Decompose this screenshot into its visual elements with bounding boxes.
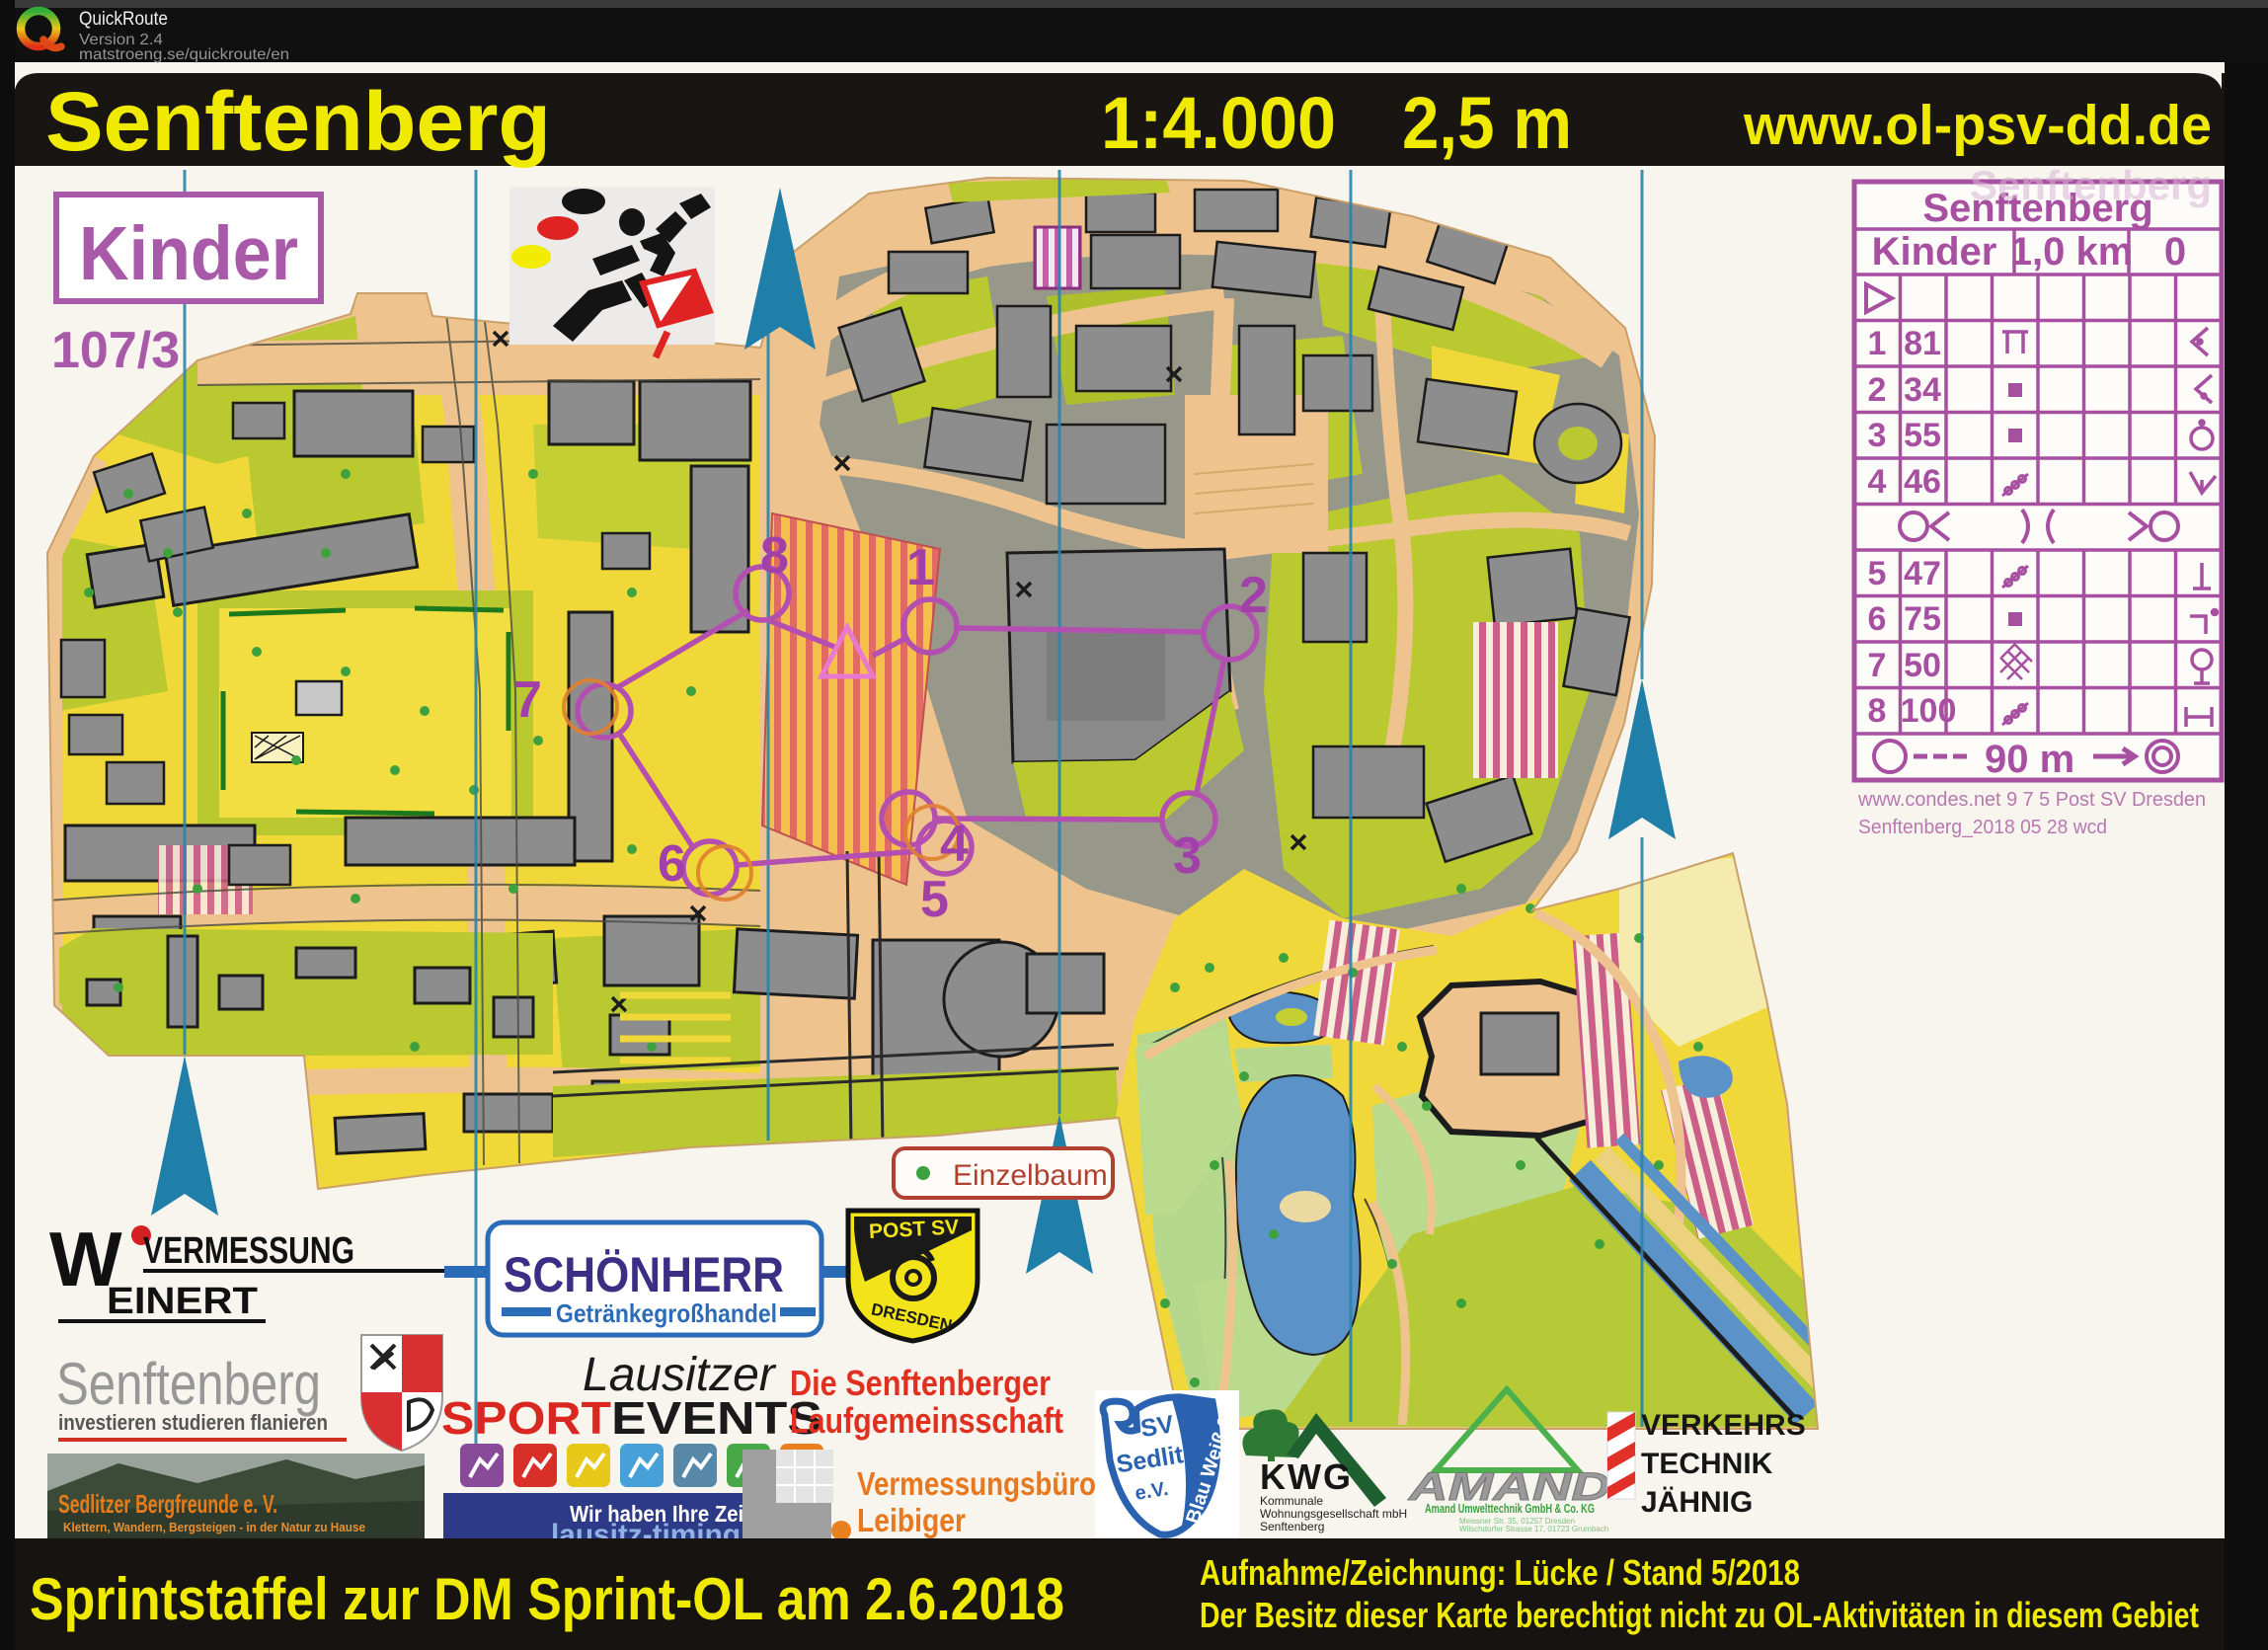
svg-text:Aufnahme/Zeichnung: Lücke / S: Aufnahme/Zeichnung: Lücke / Stand 5/2018 [1200,1552,1800,1593]
svg-text:Senftenberg_2018 05 28 wcd: Senftenberg_2018 05 28 wcd [1858,817,2107,838]
svg-text:6: 6 [658,835,686,893]
svg-text:8: 8 [760,527,789,585]
svg-text:www.condes.net 9 7 5 Post SV D: www.condes.net 9 7 5 Post SV Dresden [1857,789,2206,811]
svg-text:5: 5 [1868,555,1887,592]
svg-text:4: 4 [940,816,969,873]
svg-text:POST SV: POST SV [868,1216,959,1243]
svg-text:55: 55 [1904,417,1941,454]
svg-text:7: 7 [513,671,542,729]
svg-text:Die Senftenberger: Die Senftenberger [790,1363,1051,1403]
svg-text:EINERT: EINERT [107,1281,258,1322]
svg-text:0: 0 [2164,230,2186,274]
svg-text:TECHNIK: TECHNIK [1641,1448,1773,1480]
svg-text:75: 75 [1904,600,1941,638]
svg-text:Kinder: Kinder [79,211,298,296]
svg-text:2: 2 [1239,567,1268,624]
svg-text:QuickRoute: QuickRoute [79,9,168,30]
svg-text:Senftenberg: Senftenberg [1970,162,2212,208]
svg-text:VERMESSUNG: VERMESSUNG [143,1230,354,1272]
svg-text:KWG: KWG [1260,1456,1353,1497]
svg-text:1,0 km: 1,0 km [2010,230,2134,274]
svg-text:3: 3 [1868,417,1887,454]
svg-text:100: 100 [1901,692,1957,730]
svg-text:47: 47 [1904,555,1941,592]
svg-text:Wohnungsgesellschaft mbH: Wohnungsgesellschaft mbH [1260,1507,1407,1521]
svg-text:90 m: 90 m [1985,738,2074,781]
svg-text:investieren studieren flanie: investieren studieren flanieren [58,1410,328,1435]
svg-text:SV: SV [1138,1410,1176,1443]
svg-text:34: 34 [1904,371,1941,409]
svg-text:Klettern, Wandern, Bergsteigen: Klettern, Wandern, Bergsteigen - in der … [63,1520,365,1534]
svg-text:Laufgemeinsschaft: Laufgemeinsschaft [790,1400,1063,1441]
svg-text:Senftenberg: Senftenberg [1260,1520,1324,1533]
svg-text:Senftenberg: Senftenberg [56,1351,321,1417]
svg-text:Wilschdorfer Strasse 17, 01723: Wilschdorfer Strasse 17, 01723 Grumbach [1459,1525,1608,1533]
svg-text:JÄHNIG: JÄHNIG [1641,1486,1753,1519]
svg-text:Amand Umwelttechnik GmbH & Co.: Amand Umwelttechnik GmbH & Co. KG [1425,1501,1595,1516]
svg-text:2: 2 [1868,371,1887,409]
svg-text:Kinder: Kinder [1872,230,1997,274]
svg-text:Vermessungsbüro: Vermessungsbüro [857,1465,1096,1502]
svg-text:Der Besitz dieser Karte berech: Der Besitz dieser Karte berechtigt nicht… [1200,1595,2199,1635]
svg-text:1:4.000: 1:4.000 [1101,82,1336,164]
svg-text:4: 4 [1868,463,1887,501]
svg-text:2,5 m: 2,5 m [1402,82,1572,164]
svg-text:5: 5 [920,871,949,928]
svg-text:SCHÖNHERR: SCHÖNHERR [504,1247,784,1302]
svg-text:7: 7 [1868,647,1887,684]
svg-text:matstroeng.se/quickroute/en: matstroeng.se/quickroute/en [79,46,289,63]
svg-text:SPORT: SPORT [441,1392,611,1444]
svg-text:VERKEHRS: VERKEHRS [1641,1409,1806,1442]
svg-text:Einzelbaum: Einzelbaum [953,1159,1108,1192]
svg-text:1: 1 [1868,325,1887,362]
svg-text:Kommunale: Kommunale [1260,1494,1323,1508]
svg-text:1: 1 [906,539,935,596]
svg-text:3: 3 [1173,827,1202,885]
svg-text:Getränkegroßhandel: Getränkegroßhandel [556,1298,777,1328]
svg-text:Leibiger: Leibiger [857,1502,966,1538]
svg-text:Sprintstaffel zur DM Sprint-OL: Sprintstaffel zur DM Sprint-OL am 2.6.20… [30,1566,1064,1632]
svg-text:8: 8 [1868,692,1887,730]
svg-text:Senftenberg: Senftenberg [45,75,551,168]
svg-text:50: 50 [1904,647,1941,684]
svg-text:Sedlitzer Bergfreunde e. V.: Sedlitzer Bergfreunde e. V. [58,1489,277,1519]
svg-text:6: 6 [1868,600,1887,638]
svg-text:107/3: 107/3 [51,322,180,379]
svg-text:www.ol-psv-dd.de: www.ol-psv-dd.de [1743,94,2212,157]
svg-text:46: 46 [1904,463,1941,501]
svg-text:81: 81 [1904,325,1941,362]
